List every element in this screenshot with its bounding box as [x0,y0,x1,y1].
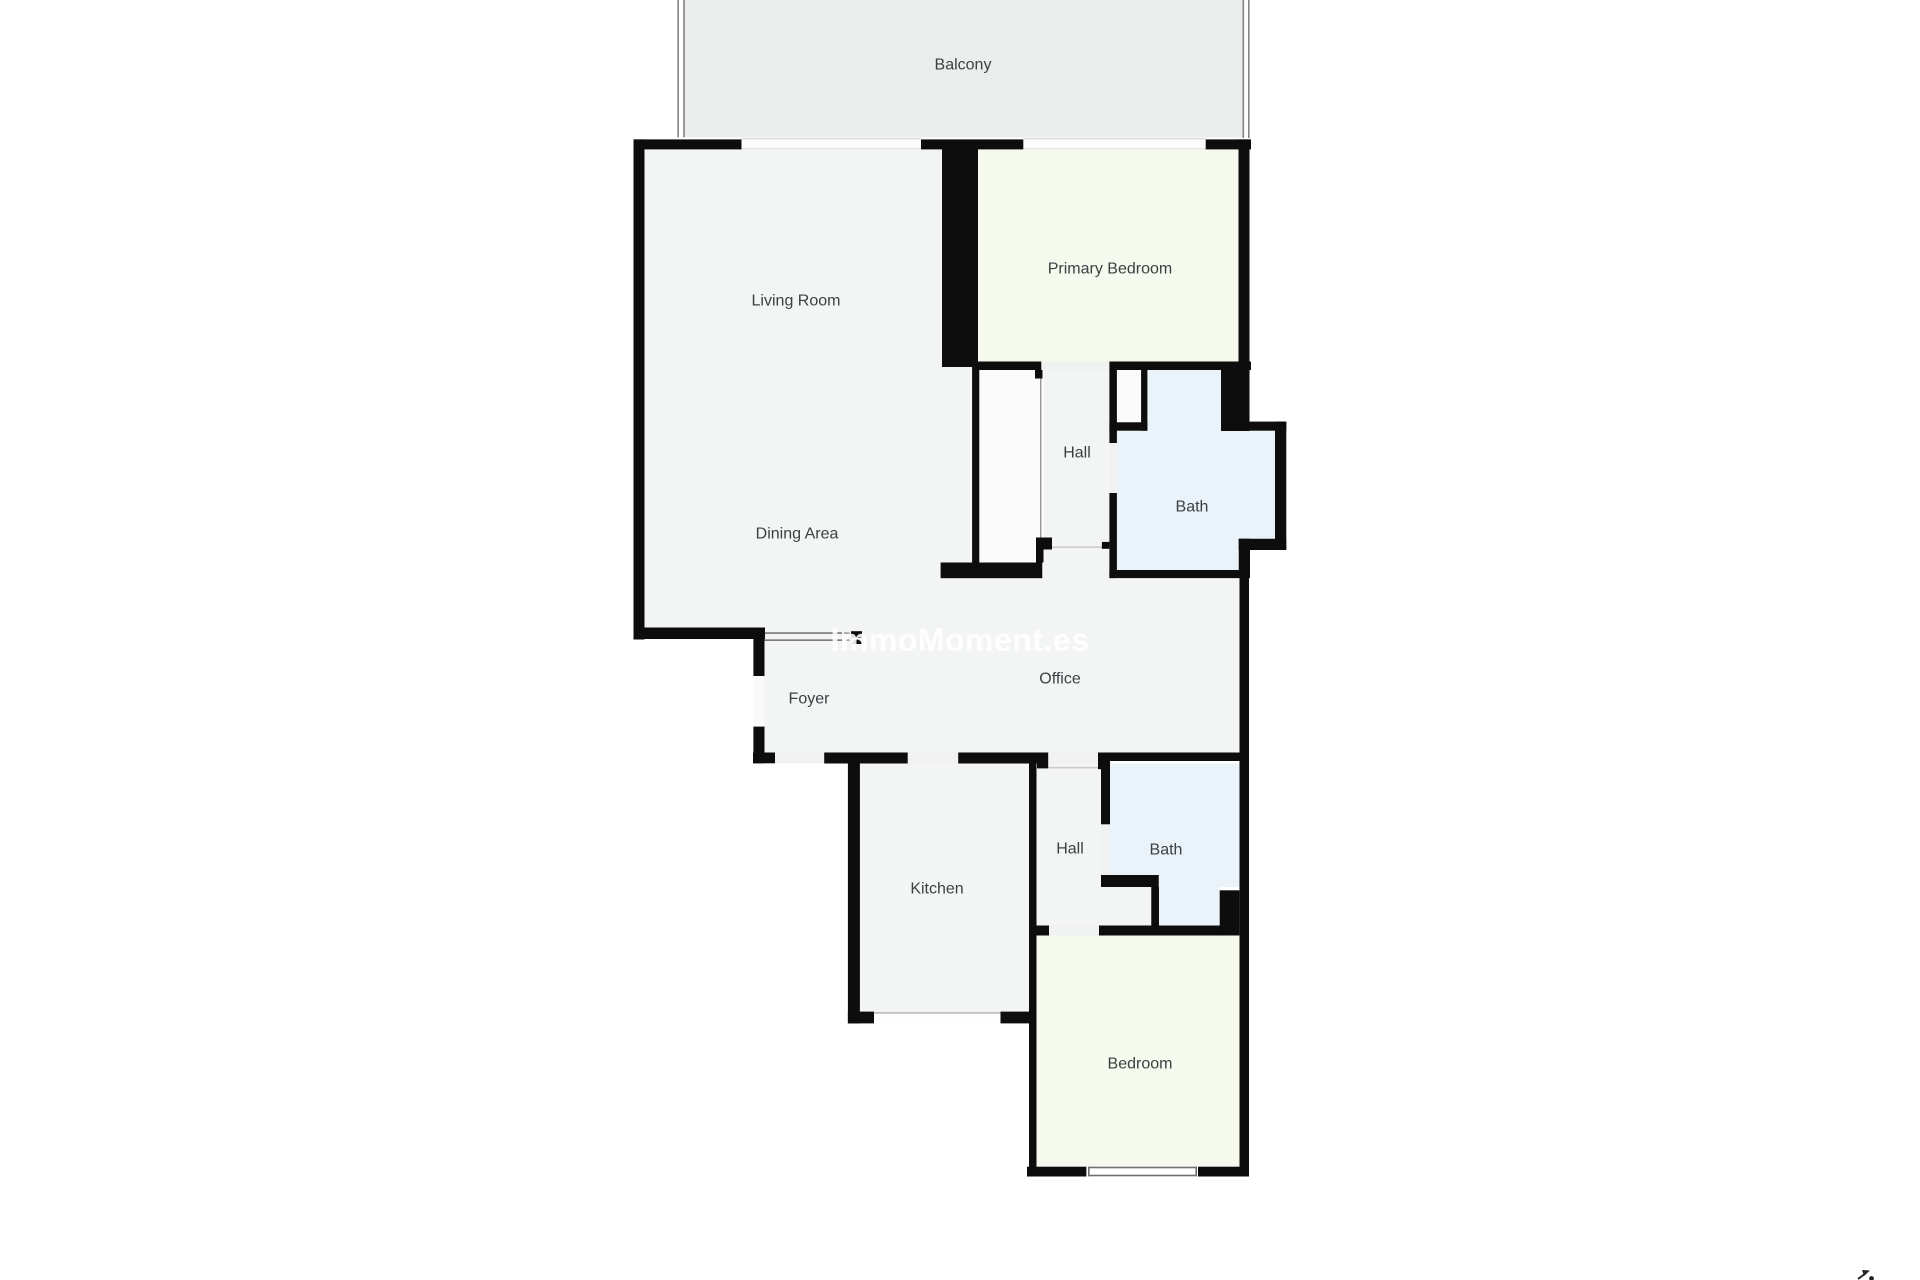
svg-text:Bedroom: Bedroom [1108,1056,1173,1073]
svg-text:Hall: Hall [1056,841,1084,858]
svg-text:Bath: Bath [1176,499,1209,516]
svg-text:Primary Bedroom: Primary Bedroom [1048,261,1172,278]
svg-text:Dining Area: Dining Area [756,526,839,543]
svg-text:Bath: Bath [1150,842,1183,859]
svg-text:Living Room: Living Room [752,293,841,310]
svg-text:Foyer: Foyer [789,691,831,708]
svg-text:Office: Office [1039,671,1081,688]
svg-text:Balcony: Balcony [935,57,992,74]
svg-text:ImmoMoment.es: ImmoMoment.es [831,622,1090,658]
svg-text:Kitchen: Kitchen [910,881,963,898]
svg-text:Hall: Hall [1063,445,1091,462]
